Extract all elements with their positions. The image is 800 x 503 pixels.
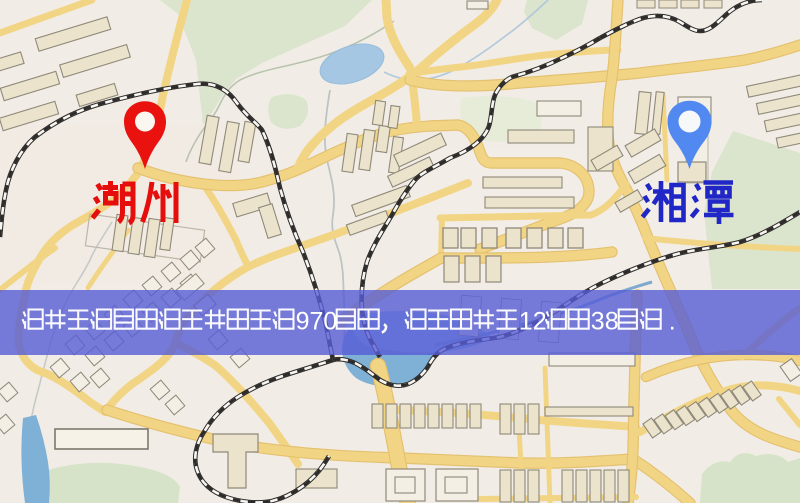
- svg-text:38: 38: [591, 308, 619, 336]
- svg-text:.: .: [669, 308, 676, 336]
- svg-text:12: 12: [519, 308, 547, 336]
- svg-text:970: 970: [296, 308, 338, 336]
